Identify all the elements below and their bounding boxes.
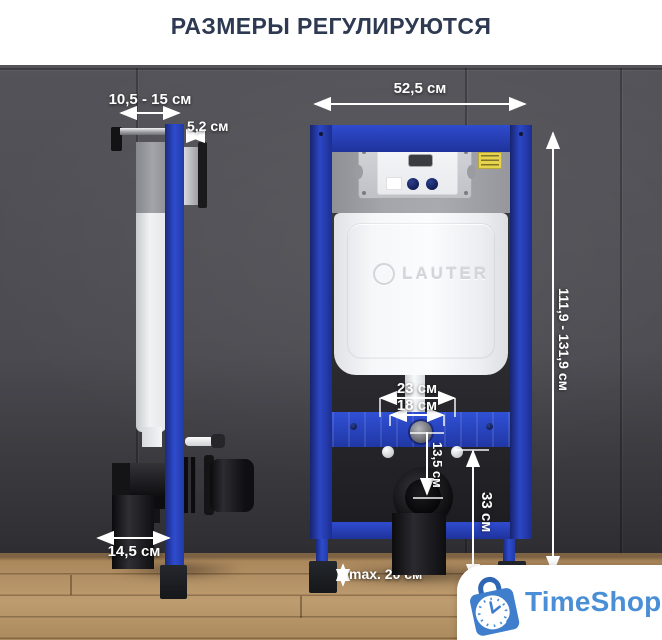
product-photo: LAUTER [0, 65, 662, 640]
product-dimensions-image: РАЗМЕРЫ РЕГУЛИРУЮТСЯ [0, 0, 662, 640]
dim-drain-offset: 14,5 см [94, 543, 174, 560]
shopping-bag-clock-icon [463, 575, 525, 640]
dim-anchor-outer: 23 см [377, 380, 457, 397]
dim-offset-wall: 10,5 - 15 см [88, 91, 212, 108]
watermark-card: TimeShop [457, 565, 662, 640]
dim-profile-depth: 5,2 см [187, 118, 229, 134]
watermark-text: TimeShop [525, 586, 661, 618]
dim-outlet-axis: 33 см [478, 492, 495, 552]
dim-frame-height: 111,9 - 131,9 см [556, 288, 572, 423]
page-title: РАЗМЕРЫ РЕГУЛИРУЮТСЯ [0, 13, 662, 40]
dim-anchor-inner: 18 см [387, 397, 447, 414]
drain-downpipe [392, 513, 446, 575]
dim-outlet-drop: 13,5 см [430, 442, 445, 498]
dim-frame-width: 52,5 см [358, 80, 482, 97]
